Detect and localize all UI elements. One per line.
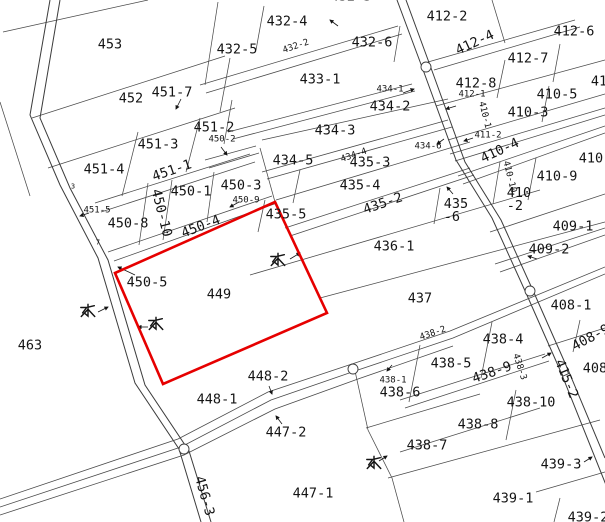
waterway-strip-lines [0,267,605,515]
road-lines [30,0,605,522]
map-line-work [0,0,605,522]
selected-parcel-449[interactable] [115,202,327,384]
cadastral-map-canvas: 453452451-7451-2451-3451-4451-1451-5450-… [0,0,605,522]
